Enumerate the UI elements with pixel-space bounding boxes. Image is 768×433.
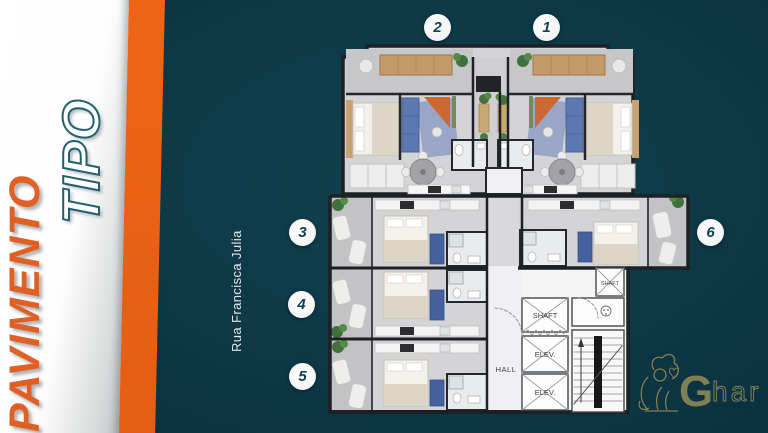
lion-icon (639, 354, 678, 411)
unit-marker-3: 3 (289, 219, 316, 246)
hall-label: HALL (496, 365, 517, 374)
elevator-bottom-label: ELEV. (535, 388, 556, 397)
lower-units-block (328, 194, 690, 413)
shaft-label: SHAFT (533, 311, 558, 320)
logo-g: G (679, 367, 713, 416)
unit-marker-1: 1 (533, 14, 560, 41)
top-units-block (343, 46, 639, 194)
unit-marker-5: 5 (289, 363, 316, 390)
floor-plan: SHAFT SHAFT ELEV. ELEV. HALL G har (0, 0, 768, 433)
unit-marker-6: 6 (697, 219, 724, 246)
unit-marker-4: 4 (288, 291, 315, 318)
watermark-logo: G har (639, 354, 761, 416)
shaft-small-label: SHAFT (601, 281, 620, 287)
elevator-top-label: ELEV. (535, 350, 556, 359)
slide-background: PAVIMENTO TIPO Rua Francisca Julia (0, 0, 768, 433)
unit-marker-2: 2 (424, 14, 451, 41)
logo-text: har (712, 376, 761, 407)
